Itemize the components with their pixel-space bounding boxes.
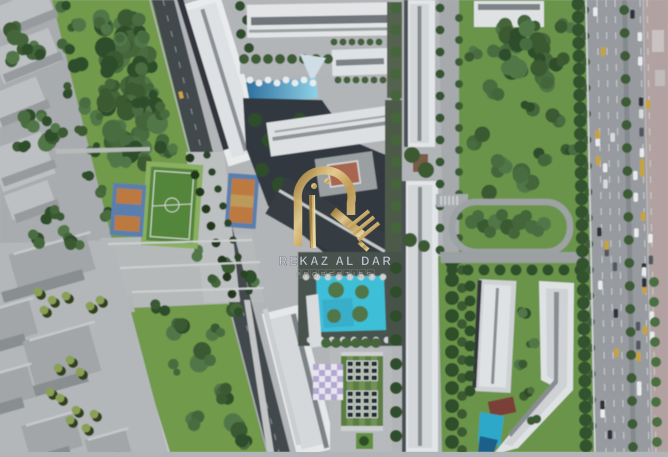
svg-text:PROPERTIES: PROPERTIES	[296, 272, 375, 279]
svg-text:REKAZ AL DAR: REKAZ AL DAR	[279, 256, 393, 268]
